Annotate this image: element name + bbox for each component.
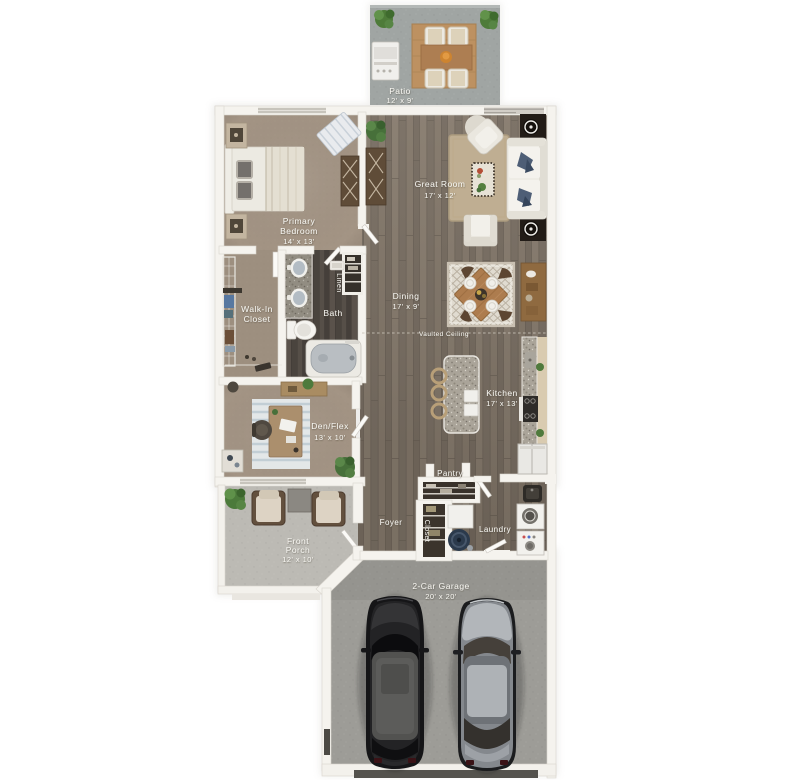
svg-text:Bedroom: Bedroom bbox=[280, 226, 318, 236]
svg-text:13' x 10': 13' x 10' bbox=[314, 433, 346, 442]
svg-text:12' x 10': 12' x 10' bbox=[282, 555, 314, 564]
svg-text:Primary: Primary bbox=[283, 216, 316, 226]
svg-text:Vaulted Ceiling: Vaulted Ceiling bbox=[419, 331, 469, 338]
svg-text:Dining: Dining bbox=[393, 291, 420, 301]
svg-text:Great Room: Great Room bbox=[415, 179, 466, 189]
svg-text:Porch: Porch bbox=[286, 545, 310, 555]
svg-text:17' x 12': 17' x 12' bbox=[424, 191, 456, 200]
svg-text:Laundry: Laundry bbox=[479, 525, 511, 534]
svg-text:17' x 9': 17' x 9' bbox=[393, 302, 420, 311]
svg-text:Pantry: Pantry bbox=[437, 469, 463, 478]
svg-text:Closet: Closet bbox=[423, 520, 430, 543]
svg-text:20' x 20': 20' x 20' bbox=[425, 592, 457, 601]
svg-text:Walk-In: Walk-In bbox=[241, 304, 273, 314]
svg-text:Foyer: Foyer bbox=[380, 518, 403, 527]
svg-text:Bath: Bath bbox=[323, 308, 342, 318]
svg-text:17' x 13': 17' x 13' bbox=[486, 399, 518, 408]
svg-text:Kitchen: Kitchen bbox=[486, 388, 518, 398]
svg-text:2-Car Garage: 2-Car Garage bbox=[412, 581, 469, 591]
svg-text:Den/Flex: Den/Flex bbox=[311, 421, 349, 431]
svg-text:Closet: Closet bbox=[244, 314, 271, 324]
svg-text:Linen: Linen bbox=[335, 273, 342, 292]
svg-text:12' x 9': 12' x 9' bbox=[387, 96, 414, 105]
svg-text:Patio: Patio bbox=[389, 86, 411, 96]
svg-text:14' x 13': 14' x 13' bbox=[283, 237, 315, 246]
